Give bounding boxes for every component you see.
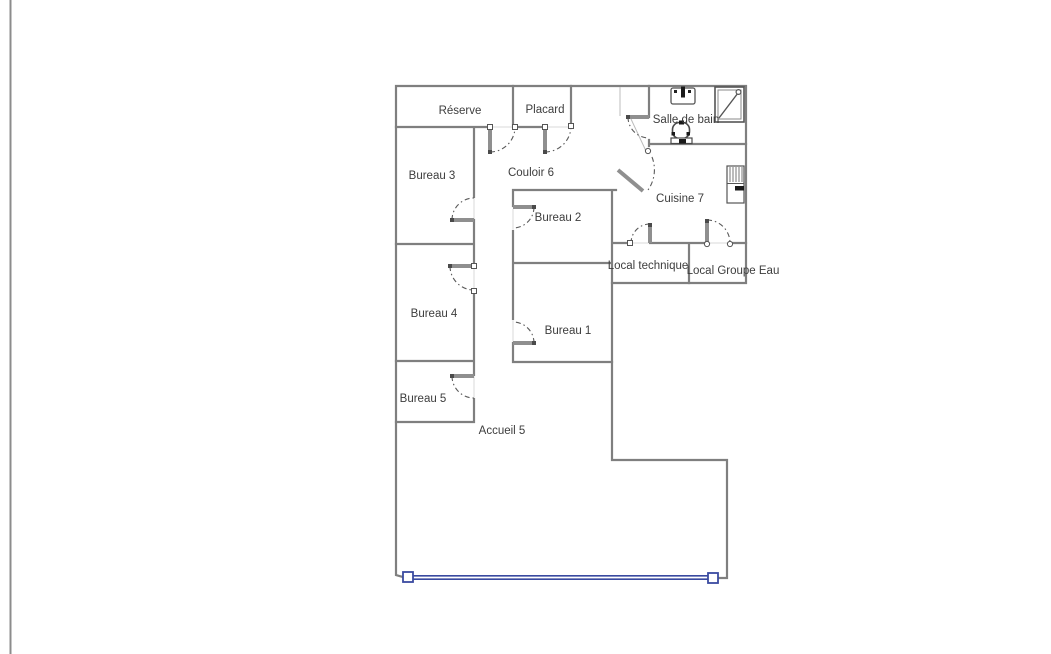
- room-labels: Réserve Placard Salle de bain Bureau 3 C…: [400, 104, 780, 437]
- room-label-local-technique: Local technique: [608, 260, 689, 272]
- door-leaves: [450, 117, 707, 376]
- floor-plan-drawing: Réserve Placard Salle de bain Bureau 3 C…: [396, 86, 779, 583]
- room-label-couloir-6: Couloir 6: [508, 167, 554, 179]
- selection-handle-right[interactable]: [708, 573, 718, 583]
- room-label-bureau-5: Bureau 5: [400, 393, 447, 405]
- water-heater-icon: [727, 166, 744, 203]
- room-label-local-groupe-eau: Local Groupe Eau: [687, 265, 780, 277]
- jamb-circle: [704, 241, 709, 246]
- room-label-bureau-2: Bureau 2: [535, 212, 582, 224]
- glazed-wall-selected[interactable]: [403, 572, 718, 583]
- room-label-accueil-5: Accueil 5: [479, 425, 526, 437]
- sink-icon: [671, 87, 695, 105]
- room-label-cuisine-7: Cuisine 7: [656, 193, 704, 205]
- jamb-square: [569, 124, 574, 129]
- jamb-square: [488, 125, 493, 130]
- jamb-square: [513, 125, 518, 130]
- selection-handle-left[interactable]: [403, 572, 413, 582]
- jamb-square: [628, 241, 633, 246]
- room-label-salle-de-bain: Salle de bain: [653, 114, 720, 126]
- jamb-square: [472, 289, 477, 294]
- room-label-placard: Placard: [526, 104, 565, 116]
- interior-walls: [396, 86, 746, 422]
- room-label-bureau-3: Bureau 3: [409, 170, 456, 182]
- jamb-square: [472, 264, 477, 269]
- page-canvas: Réserve Placard Salle de bain Bureau 3 C…: [0, 0, 1051, 654]
- door-hinge-circle: [645, 148, 650, 153]
- door-leaf-caps: [450, 115, 709, 378]
- shower-icon: [715, 87, 744, 122]
- room-label-bureau-4: Bureau 4: [411, 308, 458, 320]
- jamb-circle: [727, 241, 732, 246]
- floor-plan-svg: Réserve Placard Salle de bain Bureau 3 C…: [0, 0, 1051, 654]
- jamb-square: [543, 125, 548, 130]
- room-label-reserve: Réserve: [439, 105, 482, 117]
- room-label-bureau-1: Bureau 1: [545, 325, 592, 337]
